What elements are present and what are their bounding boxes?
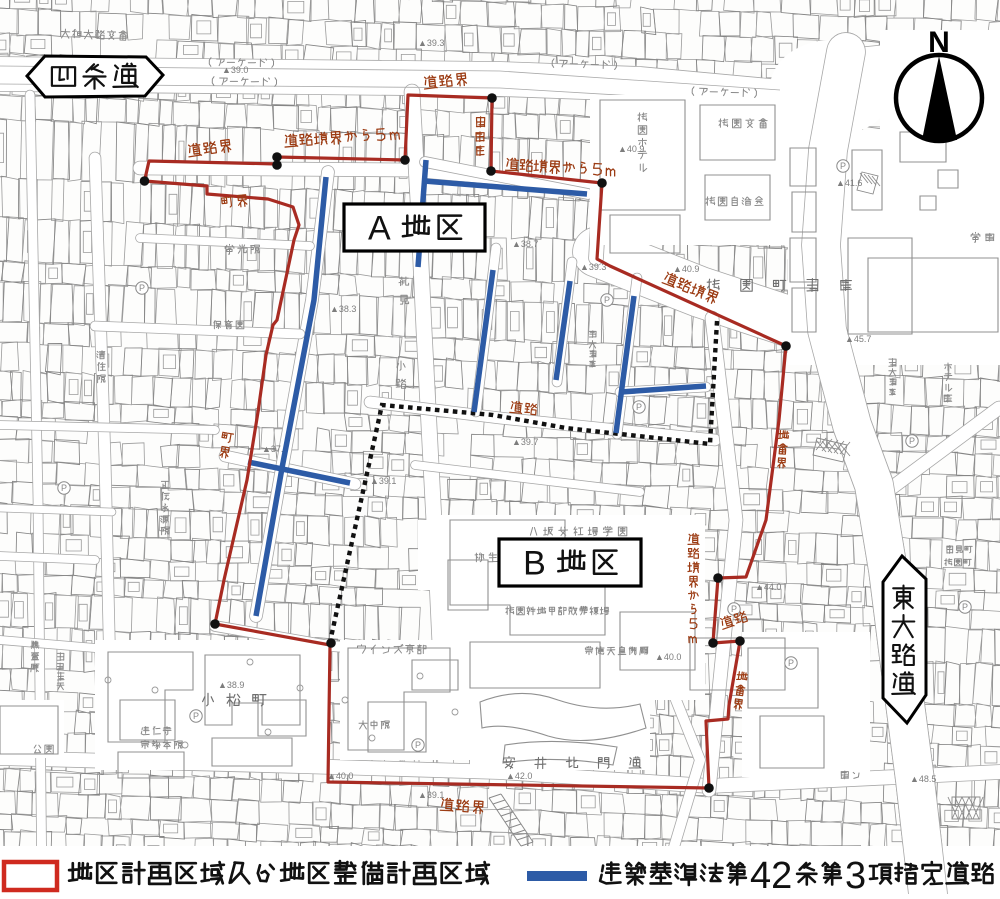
svg-text:3: 3 (845, 855, 866, 894)
svg-text:A: A (368, 210, 391, 248)
svg-text:P: P (788, 658, 794, 668)
svg-text:▲40.0: ▲40.0 (655, 652, 681, 662)
svg-text:▲41.6: ▲41.6 (836, 178, 862, 188)
svg-text:P: P (636, 402, 642, 412)
svg-text:P: P (415, 740, 421, 750)
svg-text:▲40.9: ▲40.9 (618, 144, 644, 154)
svg-text:▲39.7: ▲39.7 (512, 437, 538, 447)
svg-text:▲44.0: ▲44.0 (755, 582, 781, 592)
svg-text:▲38.9: ▲38.9 (218, 680, 244, 690)
svg-text:▲48.5: ▲48.5 (910, 774, 936, 784)
svg-text:▲39.0: ▲39.0 (222, 65, 248, 75)
svg-text:▲38.7: ▲38.7 (512, 239, 538, 249)
svg-text:▲42.0: ▲42.0 (506, 771, 532, 781)
svg-text:▲39.1: ▲39.1 (418, 790, 444, 800)
svg-text:▲38.3: ▲38.3 (330, 304, 356, 314)
svg-text:P: P (604, 295, 610, 305)
svg-text:▲40.9: ▲40.9 (673, 264, 699, 274)
svg-text:N: N (928, 26, 950, 59)
svg-text:▲45.7: ▲45.7 (845, 334, 871, 344)
svg-text:▲40.0: ▲40.0 (327, 771, 353, 781)
svg-text:P: P (962, 602, 968, 612)
svg-text:P: P (909, 436, 915, 446)
svg-text:P: P (61, 483, 67, 493)
svg-text:▲39.1: ▲39.1 (370, 476, 396, 486)
svg-text:P: P (193, 711, 199, 721)
svg-text:42: 42 (750, 855, 792, 894)
svg-text:B: B (523, 545, 546, 583)
svg-text:▲39.3: ▲39.3 (418, 38, 444, 48)
svg-text:P: P (840, 161, 846, 171)
svg-text:P: P (139, 283, 145, 293)
svg-text:P: P (731, 604, 737, 614)
